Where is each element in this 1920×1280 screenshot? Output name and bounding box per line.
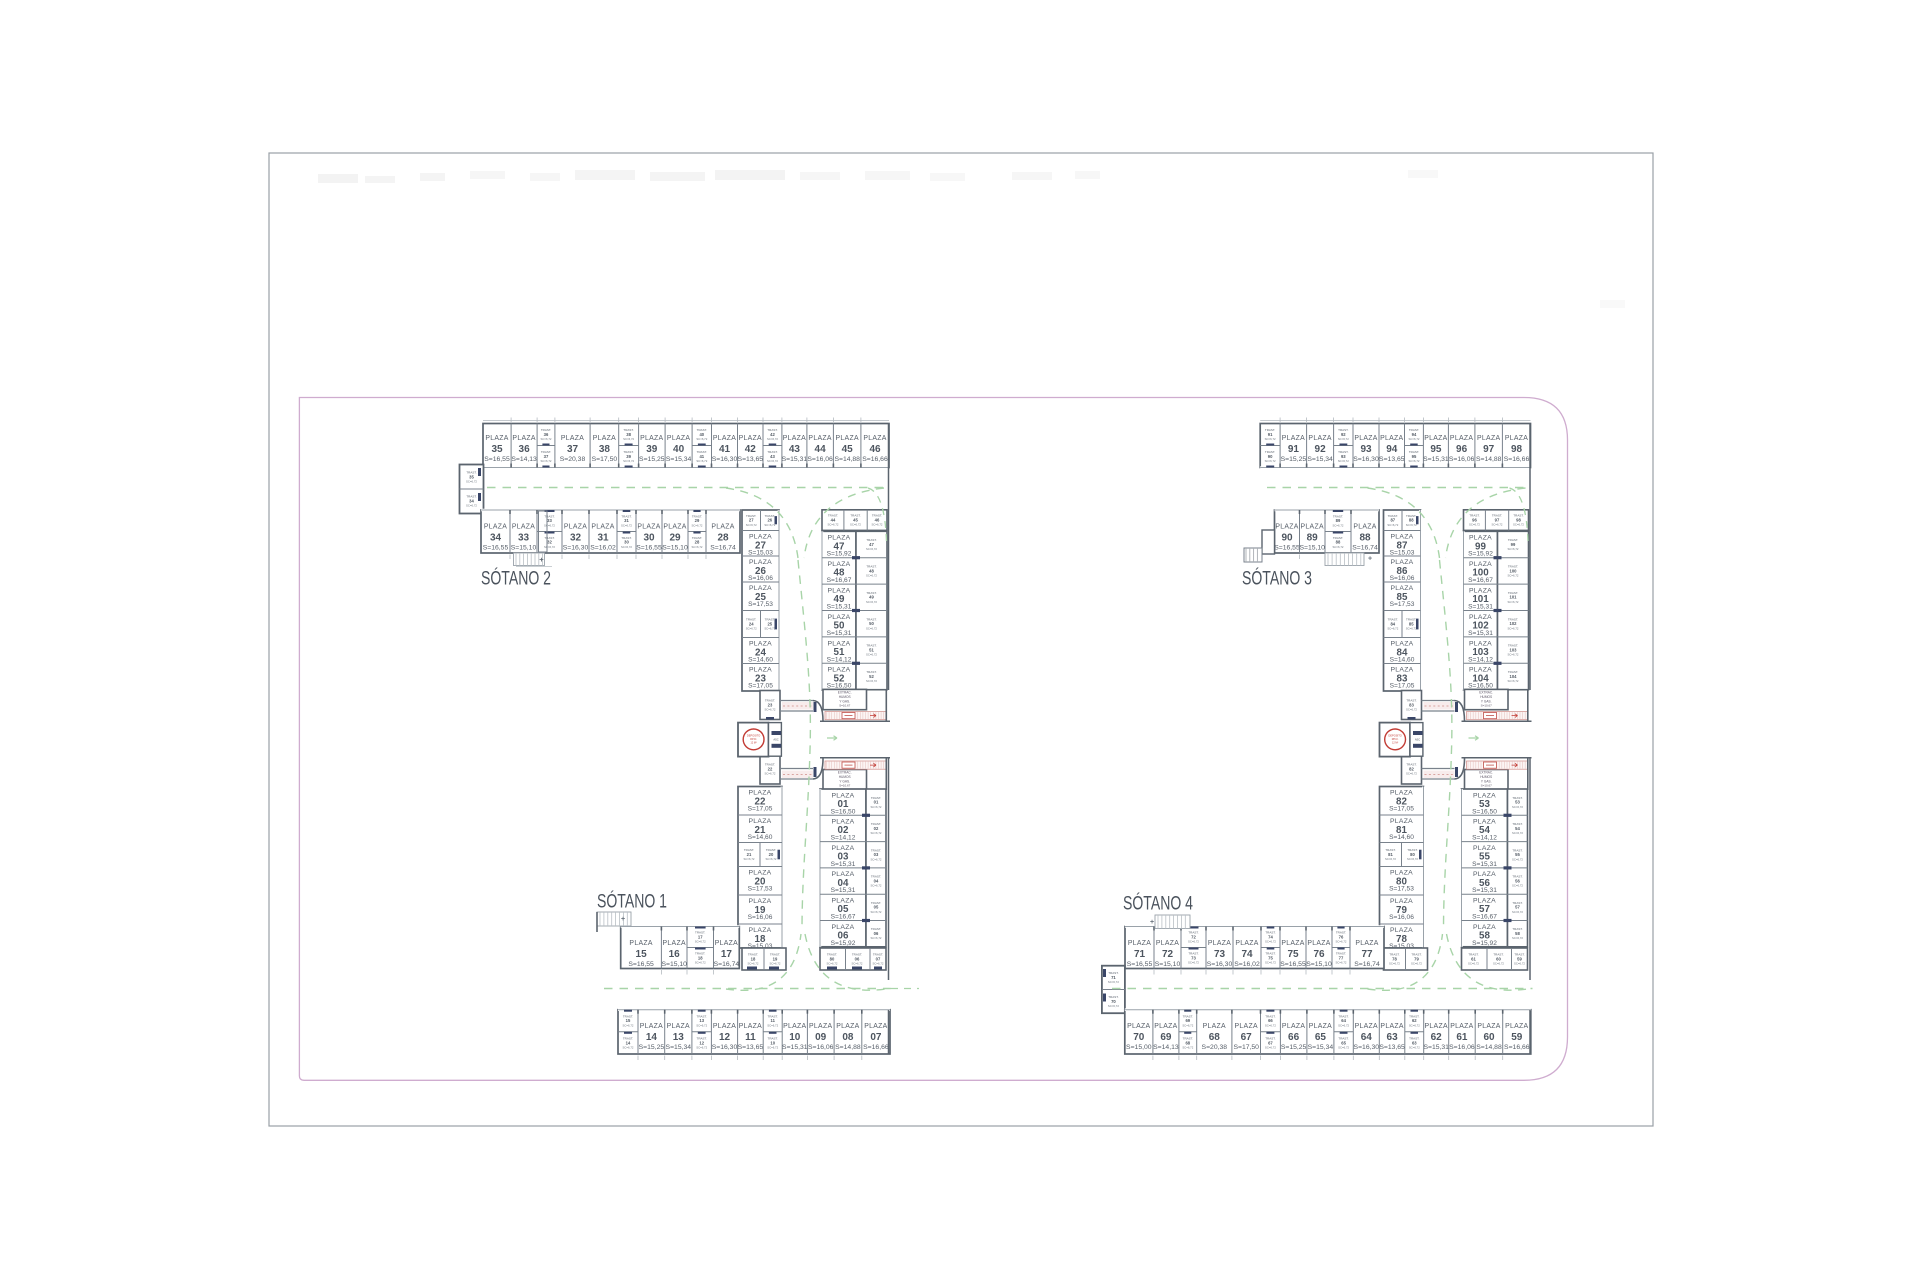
- svg-text:PLAZA: PLAZA: [1235, 1023, 1258, 1030]
- svg-text:33: 33: [547, 518, 552, 523]
- svg-text:S=16,06: S=16,06: [808, 1044, 834, 1051]
- svg-text:SC=6,72: SC=6,72: [623, 459, 634, 463]
- svg-text:SC=6,72: SC=6,72: [746, 523, 757, 527]
- svg-text:93: 93: [1360, 444, 1372, 455]
- svg-text:88: 88: [1336, 540, 1341, 545]
- svg-text:40: 40: [673, 444, 685, 455]
- svg-text:S=15,31: S=15,31: [782, 1044, 808, 1051]
- svg-text:SC=6,72: SC=6,72: [1508, 574, 1519, 578]
- svg-text:SC=6,72: SC=6,72: [1513, 523, 1524, 527]
- svg-text:S=16,74: S=16,74: [1354, 961, 1380, 968]
- svg-text:35: 35: [491, 444, 503, 455]
- svg-text:96: 96: [1456, 444, 1468, 455]
- svg-text:SC=6,72: SC=6,72: [1389, 962, 1400, 966]
- svg-text:SC=6,72: SC=6,72: [1406, 523, 1417, 527]
- svg-text:31: 31: [624, 518, 629, 523]
- svg-text:HUMOS: HUMOS: [839, 775, 851, 779]
- svg-text:26: 26: [767, 518, 772, 523]
- svg-text:SC=6,72: SC=6,72: [1385, 857, 1396, 861]
- svg-text:PLAZA: PLAZA: [1353, 524, 1376, 531]
- svg-text:PLAZA: PLAZA: [1477, 1023, 1500, 1030]
- svg-text:S=15,31: S=15,31: [1423, 456, 1449, 463]
- svg-text:S=16,67: S=16,67: [1472, 914, 1497, 921]
- svg-text:PLAZA: PLAZA: [640, 435, 663, 442]
- svg-text:PLAZA: PLAZA: [836, 435, 859, 442]
- svg-text:S=16,50: S=16,50: [831, 808, 856, 815]
- svg-text:S=16,55: S=16,55: [483, 545, 509, 552]
- svg-text:PLAZA: PLAZA: [711, 524, 734, 531]
- svg-text:12: 12: [719, 1032, 731, 1043]
- svg-text:SC=6,72: SC=6,72: [544, 523, 555, 527]
- svg-text:SC=6,72: SC=6,72: [1338, 459, 1349, 463]
- svg-text:SC=6,72: SC=6,72: [1265, 459, 1276, 463]
- svg-text:PLAZA: PLAZA: [1282, 435, 1305, 442]
- svg-text:SC=6,72: SC=6,72: [621, 523, 632, 527]
- svg-text:37: 37: [567, 444, 579, 455]
- svg-text:SC=6,72: SC=6,72: [1338, 437, 1349, 441]
- svg-text:S=14,88: S=14,88: [835, 1044, 861, 1051]
- svg-text:SC=6,72: SC=6,72: [1409, 459, 1420, 463]
- svg-text:PLAZA: PLAZA: [836, 1023, 859, 1030]
- svg-text:PLAZA: PLAZA: [739, 435, 762, 442]
- svg-text:34: 34: [490, 533, 502, 544]
- svg-text:S=16,66: S=16,66: [863, 1044, 889, 1051]
- svg-text:SC=6,72: SC=6,72: [767, 1023, 778, 1027]
- svg-text:SC=6,72: SC=6,72: [765, 708, 776, 712]
- svg-text:61: 61: [1456, 1032, 1468, 1043]
- svg-text:87: 87: [1390, 518, 1395, 523]
- svg-text:S=15,31: S=15,31: [827, 630, 852, 637]
- svg-text:S=16,55: S=16,55: [1127, 961, 1153, 968]
- svg-text:S=15,31: S=15,31: [831, 861, 856, 868]
- svg-text:S=17,05: S=17,05: [748, 683, 773, 690]
- svg-text:SC=6,72: SC=6,72: [764, 523, 775, 527]
- svg-text:S=16,02: S=16,02: [1234, 961, 1260, 968]
- svg-text:SC=6,72: SC=6,72: [871, 805, 882, 809]
- svg-text:SC=6,72: SC=6,72: [765, 772, 776, 776]
- svg-text:88: 88: [1409, 518, 1414, 523]
- svg-text:89: 89: [1336, 518, 1341, 523]
- svg-text:S=17,05: S=17,05: [748, 806, 773, 813]
- svg-text:S=16,06: S=16,06: [1449, 456, 1475, 463]
- svg-text:SC=6,72: SC=6,72: [1469, 523, 1480, 527]
- svg-text:SC=6,72: SC=6,72: [1508, 653, 1519, 657]
- svg-text:SC=6,72: SC=6,72: [1336, 940, 1347, 944]
- svg-text:63: 63: [1387, 1032, 1399, 1043]
- svg-text:09: 09: [815, 1032, 827, 1043]
- svg-text:SC=6,72: SC=6,72: [1409, 1046, 1420, 1050]
- svg-text:S=15,25: S=15,25: [1281, 456, 1307, 463]
- svg-text:SC=6,72: SC=6,72: [466, 504, 477, 508]
- svg-text:SÓTANO 4: SÓTANO 4: [1123, 893, 1193, 915]
- svg-text:SC=6,72: SC=6,72: [466, 480, 477, 484]
- svg-text:Y GAS.: Y GAS.: [839, 699, 850, 703]
- svg-text:Y GAS.: Y GAS.: [1481, 699, 1492, 703]
- svg-text:S=13,65: S=13,65: [1379, 456, 1405, 463]
- svg-text:SC=6,72: SC=6,72: [1265, 1023, 1276, 1027]
- svg-text:S=16,06: S=16,06: [1449, 1044, 1475, 1051]
- svg-text:PLAZA: PLAZA: [1424, 435, 1447, 442]
- svg-text:PLAZA: PLAZA: [783, 1023, 806, 1030]
- svg-text:PLAZA: PLAZA: [713, 1023, 736, 1030]
- svg-text:27: 27: [749, 518, 754, 523]
- svg-text:39: 39: [646, 444, 658, 455]
- svg-text:PLAZA: PLAZA: [1380, 435, 1403, 442]
- svg-text:PLAZA: PLAZA: [1282, 1023, 1305, 1030]
- svg-text:PLAZA: PLAZA: [1354, 435, 1377, 442]
- svg-text:30: 30: [643, 533, 655, 544]
- svg-text:45: 45: [842, 444, 854, 455]
- svg-text:SC=6,72: SC=6,72: [1514, 962, 1525, 966]
- svg-text:SC=6,72: SC=6,72: [1492, 523, 1503, 527]
- svg-text:76: 76: [1313, 949, 1325, 960]
- svg-text:S=17,53: S=17,53: [748, 601, 773, 608]
- svg-text:SC=6,72: SC=6,72: [1336, 961, 1347, 965]
- svg-text:SC=6,72: SC=6,72: [621, 545, 632, 549]
- svg-text:SC=6,72: SC=6,72: [1182, 1046, 1193, 1050]
- svg-text:PLAZA: PLAZA: [663, 940, 686, 947]
- svg-text:PLAZA: PLAZA: [1308, 435, 1331, 442]
- svg-text:S=13,65: S=13,65: [738, 1044, 764, 1051]
- svg-text:08: 08: [842, 1032, 854, 1043]
- svg-text:PLAZA: PLAZA: [783, 435, 806, 442]
- svg-text:S=15,31: S=15,31: [831, 887, 856, 894]
- svg-text:17: 17: [721, 949, 733, 960]
- svg-text:62: 62: [1431, 1032, 1443, 1043]
- svg-text:S=17,53: S=17,53: [1389, 886, 1414, 893]
- svg-text:S=16,30: S=16,30: [712, 456, 738, 463]
- svg-text:PLAZA: PLAZA: [1301, 524, 1324, 531]
- svg-text:32: 32: [570, 533, 582, 544]
- svg-text:SC=6,72: SC=6,72: [1338, 1023, 1349, 1027]
- svg-text:S=14,60: S=14,60: [1390, 657, 1415, 664]
- svg-text:PLAZA: PLAZA: [739, 1023, 762, 1030]
- svg-text:70: 70: [1133, 1032, 1145, 1043]
- svg-text:PLAZA: PLAZA: [667, 435, 690, 442]
- svg-text:SC=6,72: SC=6,72: [866, 600, 877, 604]
- svg-text:S=16,67: S=16,67: [1468, 577, 1493, 584]
- svg-text:SC=6,72: SC=6,72: [1406, 772, 1417, 776]
- svg-text:SC=6,72: SC=6,72: [1108, 980, 1119, 984]
- svg-text:S=17,50: S=17,50: [1233, 1044, 1259, 1051]
- svg-text:SC=6,72: SC=6,72: [866, 653, 877, 657]
- svg-text:68: 68: [1209, 1032, 1221, 1043]
- svg-text:SC=6,72: SC=6,72: [1508, 626, 1519, 630]
- svg-text:S=14,12: S=14,12: [1472, 835, 1497, 842]
- svg-text:S=14,60: S=14,60: [748, 834, 773, 841]
- svg-text:HUMOS: HUMOS: [1480, 775, 1492, 779]
- svg-text:S=16,30: S=16,30: [712, 1044, 738, 1051]
- svg-text:S=16,74: S=16,74: [714, 961, 740, 968]
- svg-text:DEPOSITO: DEPOSITO: [747, 734, 760, 738]
- svg-text:SC=6,72: SC=6,72: [1512, 936, 1523, 940]
- svg-text:10: 10: [789, 1032, 801, 1043]
- svg-text:EXTRAC.: EXTRAC.: [1479, 771, 1493, 775]
- svg-text:S=20,38: S=20,38: [1202, 1044, 1228, 1051]
- svg-text:S=15,31: S=15,31: [1472, 861, 1497, 868]
- svg-text:S=17,05: S=17,05: [1390, 683, 1415, 690]
- svg-text:01: 01: [874, 800, 879, 805]
- svg-text:EXTRAC.: EXTRAC.: [1479, 691, 1493, 695]
- svg-text:SC=6,72: SC=6,72: [767, 1046, 778, 1050]
- svg-text:S=15,10: S=15,10: [1155, 961, 1181, 968]
- svg-text:38: 38: [599, 444, 611, 455]
- svg-text:SC=6,72: SC=6,72: [1407, 857, 1418, 861]
- svg-text:SC=6,72: SC=6,72: [1265, 1046, 1276, 1050]
- svg-text:S=16,02: S=16,02: [590, 545, 616, 552]
- svg-text:SC=6,72: SC=6,72: [871, 884, 882, 888]
- svg-text:S=16,30: S=16,30: [1354, 1044, 1380, 1051]
- svg-text:SÓTANO 1: SÓTANO 1: [597, 891, 667, 913]
- svg-text:SC=6,72: SC=6,72: [1512, 884, 1523, 888]
- svg-text:S=15,25: S=15,25: [639, 456, 665, 463]
- svg-text:PLAZA: PLAZA: [1154, 1023, 1177, 1030]
- svg-text:31: 31: [597, 533, 609, 544]
- svg-text:PLAZA: PLAZA: [663, 524, 686, 531]
- svg-text:28: 28: [695, 540, 700, 545]
- svg-text:S=13,65: S=13,65: [1379, 1044, 1405, 1051]
- svg-text:14: 14: [646, 1032, 658, 1043]
- svg-text:PLAZA: PLAZA: [713, 435, 736, 442]
- svg-text:SC=6,72: SC=6,72: [871, 936, 882, 940]
- svg-text:42: 42: [745, 444, 757, 455]
- svg-text:S=14,12: S=14,12: [1468, 656, 1493, 663]
- svg-text:SC=6,72: SC=6,72: [1333, 523, 1344, 527]
- svg-text:EXTRAC.: EXTRAC.: [838, 691, 852, 695]
- svg-text:07: 07: [870, 1032, 882, 1043]
- svg-text:PLAZA: PLAZA: [564, 524, 587, 531]
- svg-text:29: 29: [695, 518, 700, 523]
- svg-text:94: 94: [1386, 444, 1398, 455]
- svg-text:SC=6,72: SC=6,72: [1338, 1046, 1349, 1050]
- svg-text:SC=6,72: SC=6,72: [1265, 437, 1276, 441]
- svg-text:PLAZA: PLAZA: [1208, 940, 1231, 947]
- svg-text:SÓTANO 3: SÓTANO 3: [1242, 568, 1312, 590]
- svg-text:77: 77: [1361, 949, 1373, 960]
- svg-text:+: +: [621, 916, 625, 923]
- svg-text:S=16,67: S=16,67: [831, 914, 856, 921]
- svg-text:SC=6,72: SC=6,72: [871, 831, 882, 835]
- svg-text:PLAZA: PLAZA: [1128, 940, 1151, 947]
- svg-text:S=16,06: S=16,06: [748, 914, 773, 921]
- svg-text:SC=6,72: SC=6,72: [1508, 679, 1519, 683]
- svg-text:64: 64: [1361, 1032, 1373, 1043]
- svg-text:PLAZA: PLAZA: [593, 435, 616, 442]
- svg-text:S=16,06: S=16,06: [1389, 914, 1414, 921]
- svg-text:ASC: ASC: [773, 738, 778, 742]
- svg-text:46: 46: [869, 444, 881, 455]
- svg-text:65: 65: [1315, 1032, 1327, 1043]
- svg-text:29: 29: [669, 533, 681, 544]
- svg-text:SC=6,72: SC=6,72: [696, 1046, 707, 1050]
- svg-text:75: 75: [1287, 949, 1299, 960]
- svg-text:SC=6,72: SC=6,72: [866, 626, 877, 630]
- svg-text:SC=6,72: SC=6,72: [623, 437, 634, 441]
- svg-text:PLAZA: PLAZA: [637, 524, 660, 531]
- svg-text:PLAZA: PLAZA: [591, 524, 614, 531]
- svg-text:SC=6,72: SC=6,72: [696, 1023, 707, 1027]
- svg-text:S=16,55: S=16,55: [636, 545, 662, 552]
- svg-text:Y GAS.: Y GAS.: [839, 779, 850, 783]
- svg-text:SC=6,72: SC=6,72: [852, 962, 863, 966]
- svg-text:PLAZA: PLAZA: [1355, 1023, 1378, 1030]
- svg-text:SC=6,72: SC=6,72: [1512, 831, 1523, 835]
- svg-text:SC=6,72: SC=6,72: [1468, 962, 1479, 966]
- svg-text:SC=6,72: SC=6,72: [1188, 940, 1199, 944]
- svg-text:SC=6,72: SC=6,72: [866, 547, 877, 551]
- svg-text:SC=6,72: SC=6,72: [764, 627, 775, 631]
- svg-text:SC=6,72: SC=6,72: [746, 627, 757, 631]
- svg-text:PLAZA: PLAZA: [1156, 940, 1179, 947]
- svg-text:SC=6,72: SC=6,72: [1387, 627, 1398, 631]
- svg-text:S=14,88: S=14,88: [834, 456, 860, 463]
- svg-text:SC=6,72: SC=6,72: [541, 459, 552, 463]
- svg-text:S=16,66: S=16,66: [1504, 1044, 1530, 1051]
- svg-text:36: 36: [519, 444, 531, 455]
- svg-text:98: 98: [1511, 444, 1523, 455]
- svg-text:S=14,88: S=14,88: [1476, 1044, 1502, 1051]
- svg-text:SC=6,72: SC=6,72: [544, 545, 555, 549]
- svg-text:SC=6,72: SC=6,72: [748, 962, 759, 966]
- svg-text:SC=6,72: SC=6,72: [541, 437, 552, 441]
- svg-text:SC=6,72: SC=6,72: [1409, 437, 1420, 441]
- svg-text:SC=6,72: SC=6,72: [767, 459, 778, 463]
- svg-text:S=15,31: S=15,31: [1468, 630, 1493, 637]
- svg-text:PLAZA: PLAZA: [1477, 435, 1500, 442]
- svg-text:ASC: ASC: [1415, 738, 1420, 742]
- svg-text:EXTRAC.: EXTRAC.: [838, 771, 852, 775]
- svg-text:PLAZA: PLAZA: [1450, 435, 1473, 442]
- svg-text:SC=6,72: SC=6,72: [692, 523, 703, 527]
- svg-text:PLAZA: PLAZA: [1281, 940, 1304, 947]
- svg-text:SC=6,72: SC=6,72: [744, 857, 755, 861]
- svg-text:SC=6,72: SC=6,72: [696, 437, 707, 441]
- svg-text:SC=6,72: SC=6,72: [850, 523, 861, 527]
- svg-text:S=10,67: S=10,67: [1481, 784, 1493, 788]
- svg-text:SC=6,72: SC=6,72: [766, 857, 777, 861]
- svg-text:S=15,10: S=15,10: [662, 545, 688, 552]
- svg-text:SÓTANO 2: SÓTANO 2: [481, 568, 551, 590]
- svg-text:SC=6,72: SC=6,72: [1409, 1023, 1420, 1027]
- svg-text:16: 16: [669, 949, 681, 960]
- svg-text:S=17,05: S=17,05: [1389, 806, 1414, 813]
- svg-text:S=15,34: S=15,34: [666, 456, 692, 463]
- svg-text:S=15,10: S=15,10: [1299, 545, 1325, 552]
- svg-text:PLAZA: PLAZA: [561, 435, 584, 442]
- svg-text:S=15,00: S=15,00: [1126, 1044, 1152, 1051]
- svg-text:S=14,13: S=14,13: [1153, 1044, 1179, 1051]
- svg-text:92: 92: [1315, 444, 1327, 455]
- svg-text:SC=6,72: SC=6,72: [1265, 961, 1276, 965]
- svg-text:S=15,25: S=15,25: [1281, 1044, 1307, 1051]
- svg-text:PLAZA: PLAZA: [1425, 1023, 1448, 1030]
- svg-text:S=16,50: S=16,50: [1472, 808, 1497, 815]
- svg-text:Y GAS.: Y GAS.: [1481, 779, 1492, 783]
- svg-text:S=16,30: S=16,30: [1207, 961, 1233, 968]
- svg-text:91: 91: [1288, 444, 1300, 455]
- svg-text:PLAZA: PLAZA: [1307, 940, 1330, 947]
- svg-text:S=10,67: S=10,67: [839, 784, 851, 788]
- svg-text:53: 53: [1515, 800, 1520, 805]
- svg-text:PLAZA: PLAZA: [1505, 435, 1528, 442]
- svg-text:S=15,92: S=15,92: [1468, 551, 1493, 558]
- svg-text:S=15,31: S=15,31: [1423, 1044, 1449, 1051]
- svg-text:SC=6,72: SC=6,72: [1508, 547, 1519, 551]
- svg-text:PLAZA: PLAZA: [512, 435, 535, 442]
- svg-text:S=16,55: S=16,55: [484, 456, 510, 463]
- svg-text:S=16,30: S=16,30: [563, 545, 589, 552]
- svg-text:32: 32: [547, 540, 552, 545]
- svg-text:30: 30: [624, 540, 629, 545]
- svg-text:PLAZA: PLAZA: [715, 940, 738, 947]
- svg-text:PLAZA: PLAZA: [1380, 1023, 1403, 1030]
- svg-text:59: 59: [1511, 1032, 1523, 1043]
- svg-text:SC=6,72: SC=6,72: [1182, 1023, 1193, 1027]
- svg-text:SC=6,72: SC=6,72: [1512, 857, 1523, 861]
- svg-text:S=15,10: S=15,10: [661, 961, 687, 968]
- svg-text:SC=6,72: SC=6,72: [866, 679, 877, 683]
- svg-text:73: 73: [1214, 949, 1226, 960]
- svg-text:S=15,25: S=15,25: [639, 1044, 665, 1051]
- svg-text:SC=6,72: SC=6,72: [873, 962, 884, 966]
- svg-text:PLAZA: PLAZA: [629, 940, 652, 947]
- svg-text:S=15,31: S=15,31: [1468, 604, 1493, 611]
- svg-text:88: 88: [1359, 533, 1371, 544]
- svg-text:PLAZA: PLAZA: [485, 435, 508, 442]
- svg-text:PLAZA: PLAZA: [1355, 940, 1378, 947]
- svg-text:13: 13: [673, 1032, 685, 1043]
- svg-text:S=14,12: S=14,12: [831, 835, 856, 842]
- svg-text:SC=6,72: SC=6,72: [828, 523, 839, 527]
- svg-text:SC=6,72: SC=6,72: [692, 545, 703, 549]
- svg-text:S=16,66: S=16,66: [1504, 456, 1530, 463]
- svg-text:SC=6,72: SC=6,72: [1108, 1004, 1119, 1008]
- svg-text:S=15,34: S=15,34: [666, 1044, 692, 1051]
- svg-text:PLAZA: PLAZA: [1203, 1023, 1226, 1030]
- svg-text:SC=6,72: SC=6,72: [1512, 910, 1523, 914]
- svg-text:HUMOS: HUMOS: [1480, 695, 1492, 699]
- svg-text:SC=6,72: SC=6,72: [1406, 708, 1417, 712]
- svg-text:41: 41: [719, 444, 731, 455]
- svg-text:SC=6,72: SC=6,72: [1387, 523, 1398, 527]
- svg-text:SC=6,72: SC=6,72: [872, 523, 883, 527]
- svg-text:28: 28: [717, 533, 729, 544]
- svg-text:67: 67: [1241, 1032, 1253, 1043]
- svg-text:PLAZA: PLAZA: [1235, 940, 1258, 947]
- svg-text:PLAZA: PLAZA: [484, 524, 507, 531]
- svg-text:SC=6,72: SC=6,72: [770, 962, 781, 966]
- svg-text:SC=6,72: SC=6,72: [871, 910, 882, 914]
- svg-text:SC=6,72: SC=6,72: [767, 437, 778, 441]
- svg-text:PLAZA: PLAZA: [1127, 1023, 1150, 1030]
- svg-text:S=20,38: S=20,38: [560, 456, 586, 463]
- svg-text:66: 66: [1288, 1032, 1300, 1043]
- svg-text:97: 97: [1483, 444, 1495, 455]
- svg-text:S=16,66: S=16,66: [862, 456, 888, 463]
- svg-text:SC=6,72: SC=6,72: [1406, 627, 1417, 631]
- svg-text:S=10,67: S=10,67: [839, 704, 851, 708]
- svg-text:S=16,74: S=16,74: [710, 545, 736, 552]
- svg-text:S=10,67: S=10,67: [1481, 704, 1493, 708]
- svg-text:90: 90: [1281, 533, 1293, 544]
- svg-text:PLAZA: PLAZA: [512, 524, 535, 531]
- svg-text:PLAZA: PLAZA: [864, 1023, 887, 1030]
- svg-text:S=16,55: S=16,55: [628, 961, 654, 968]
- svg-text:44: 44: [815, 444, 827, 455]
- svg-text:SC=6,72: SC=6,72: [623, 1046, 634, 1050]
- svg-text:S=16,06: S=16,06: [748, 575, 773, 582]
- svg-text:95: 95: [1430, 444, 1442, 455]
